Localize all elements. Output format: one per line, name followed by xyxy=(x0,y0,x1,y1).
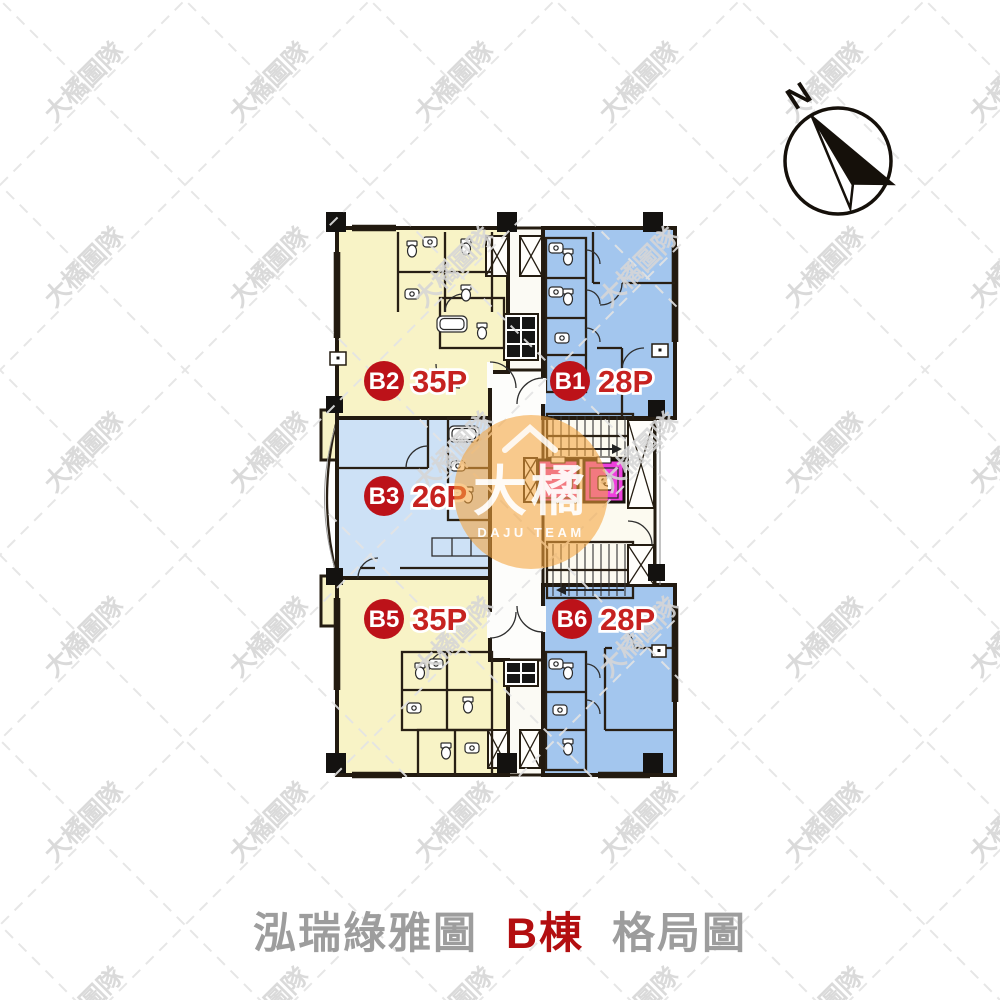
watermark-text: 大橘圖隊 xyxy=(964,777,1000,868)
watermark-text: 大橘圖隊 xyxy=(224,592,315,683)
unit-occupancy-b6: 28P xyxy=(600,602,655,637)
unit-id-b3: B3 xyxy=(369,483,400,510)
compass: N xyxy=(780,75,896,214)
watermark-text: 大橘圖隊 xyxy=(39,222,130,313)
logo-name: 大橘 xyxy=(473,462,589,522)
watermark-text: 大橘圖隊 xyxy=(779,407,870,498)
floorplan-page: 大橘圖隊大橘圖隊大橘圖隊大橘圖隊大橘圖隊大橘圖隊大橘圖隊大橘圖隊大橘圖隊大橘圖隊… xyxy=(0,0,1000,1000)
unit-occupancy-b1: 28P xyxy=(598,364,653,399)
watermark-text: 大橘圖隊 xyxy=(409,962,500,1000)
watermark-text: 大橘圖隊 xyxy=(39,777,130,868)
watermark-line xyxy=(735,0,1000,1000)
page-title: 泓瑞綠雅圖 B棟 格局圖 xyxy=(253,910,747,958)
unit-occupancy-b2: 35P xyxy=(412,364,467,399)
title-building: B棟 xyxy=(506,910,584,958)
watermark-text: 大橘圖隊 xyxy=(594,962,685,1000)
watermark-text: 大橘圖隊 xyxy=(779,777,870,868)
watermark-text: 大橘圖隊 xyxy=(779,962,870,1000)
watermark-text: 大橘圖隊 xyxy=(224,777,315,868)
title-project: 泓瑞綠雅圖 xyxy=(253,910,478,958)
watermark-text: 大橘圖隊 xyxy=(224,222,315,313)
scene: 大橘圖隊大橘圖隊大橘圖隊大橘圖隊大橘圖隊大橘圖隊大橘圖隊大橘圖隊大橘圖隊大橘圖隊… xyxy=(0,0,1000,1000)
watermark-text: 大橘圖隊 xyxy=(224,962,315,1000)
watermark-text: 大橘圖隊 xyxy=(964,592,1000,683)
watermark-text: 大橘圖隊 xyxy=(224,407,315,498)
watermark-text: 大橘圖隊 xyxy=(39,407,130,498)
watermark-text: 大橘圖隊 xyxy=(964,407,1000,498)
logo-watermark: 大橘 DAJU TEAM xyxy=(454,415,608,569)
label-b1: B1 28P xyxy=(550,361,653,401)
label-b6: B6 28P xyxy=(552,599,655,639)
watermark-text: 大橘圖隊 xyxy=(409,777,500,868)
watermark-text: 大橘圖隊 xyxy=(964,222,1000,313)
watermark-text: 大橘圖隊 xyxy=(779,222,870,313)
logo-team-text: DAJU TEAM xyxy=(477,525,584,540)
watermark-line xyxy=(735,0,1000,1000)
watermark-line xyxy=(0,0,190,1000)
watermark-text: 大橘圖隊 xyxy=(964,962,1000,1000)
watermark-text: 大橘圖隊 xyxy=(39,37,130,128)
watermark-text: 大橘圖隊 xyxy=(409,37,500,128)
unit-id-b2: B2 xyxy=(369,368,400,395)
watermark-text: 大橘圖隊 xyxy=(964,37,1000,128)
title-suffix: 格局圖 xyxy=(612,910,747,958)
watermark-text: 大橘圖隊 xyxy=(39,962,130,1000)
watermark-line xyxy=(0,0,190,1000)
utility-grid-top xyxy=(504,314,538,360)
label-b5: B5 35P xyxy=(364,599,467,639)
unit-id-b1: B1 xyxy=(555,368,586,395)
watermark-text: 大橘圖隊 xyxy=(39,592,130,683)
watermark-text: 大橘圖隊 xyxy=(779,592,870,683)
watermark-text: 大橘圖隊 xyxy=(594,777,685,868)
watermark-text: 大橘圖隊 xyxy=(224,37,315,128)
watermark-text: 大橘圖隊 xyxy=(594,37,685,128)
label-b3: B3 26P xyxy=(364,476,467,516)
label-b2: B2 35P xyxy=(364,361,467,401)
utility-grid-bottom xyxy=(504,660,538,686)
unit-id-b5: B5 xyxy=(369,606,400,633)
unit-occupancy-b5: 35P xyxy=(412,602,467,637)
unit-id-b6: B6 xyxy=(557,606,588,633)
